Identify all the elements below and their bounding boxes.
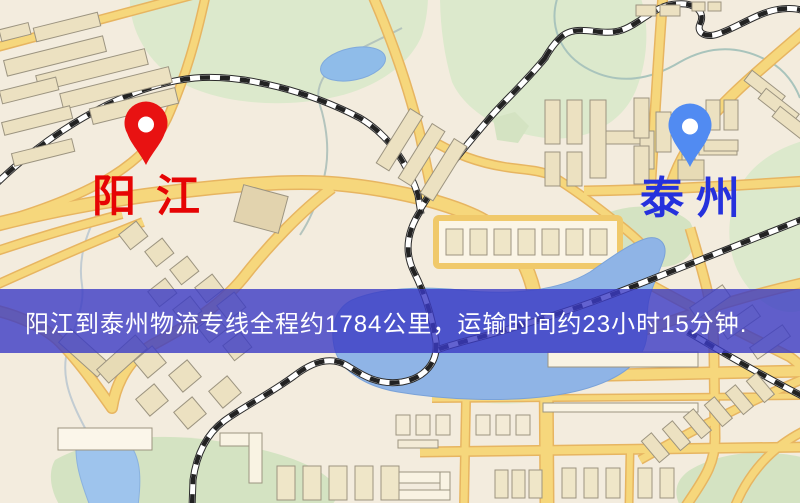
route-info-banner: 阳江到泰州物流专线全程约1784公里，运输时间约23小时15分钟. [0,289,800,353]
pin-icon [122,101,170,167]
route-info-text: 阳江到泰州物流专线全程约1784公里，运输时间约23小时15分钟. [0,304,747,339]
destination-marker[interactable] [666,103,714,169]
map-background [0,0,800,503]
map-view[interactable]: 阳江 泰州 阳江到泰州物流专线全程约1784公里，运输时间约23小时15分钟. [0,0,800,503]
origin-label: 阳江 [92,175,220,219]
origin-marker[interactable] [122,101,170,167]
pin-icon [666,103,714,169]
destination-label: 泰州 [640,177,752,221]
